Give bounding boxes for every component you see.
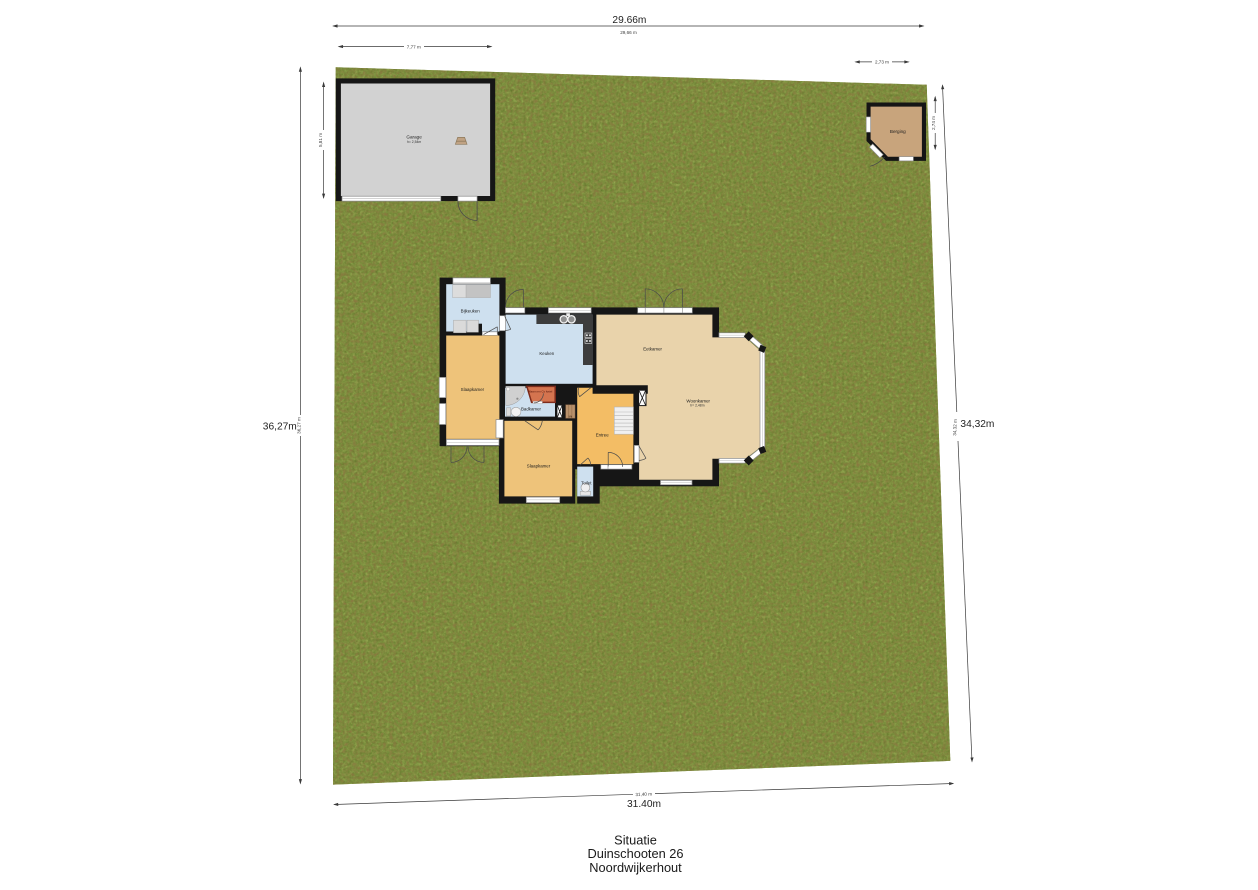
svg-text:Toilet: Toilet bbox=[581, 481, 592, 486]
svg-text:Bijkeuken: Bijkeuken bbox=[461, 309, 481, 314]
svg-text:31,40 m: 31,40 m bbox=[635, 792, 652, 798]
svg-text:Slaapkamer: Slaapkamer bbox=[527, 463, 551, 468]
svg-text:Keuken: Keuken bbox=[539, 351, 554, 356]
svg-text:Badkamer: Badkamer bbox=[521, 406, 542, 411]
svg-text:34,32m: 34,32m bbox=[960, 419, 994, 430]
svg-text:34,32 m: 34,32 m bbox=[952, 419, 958, 436]
svg-text:Berging: Berging bbox=[890, 129, 906, 134]
svg-text:7,77 m: 7,77 m bbox=[407, 44, 421, 49]
svg-text:Eetkamer: Eetkamer bbox=[643, 346, 662, 351]
svg-text:Slaapkamer: Slaapkamer bbox=[461, 387, 485, 392]
svg-text:29.66m: 29.66m bbox=[612, 15, 646, 26]
svg-text:2,73 m: 2,73 m bbox=[875, 60, 889, 65]
svg-text:36,27 m: 36,27 m bbox=[297, 417, 302, 434]
svg-text:Wasm en Cv ketel: Wasm en Cv ketel bbox=[528, 390, 553, 394]
svg-text:31.40m: 31.40m bbox=[627, 799, 661, 810]
svg-text:29,66 m: 29,66 m bbox=[620, 30, 637, 35]
svg-text:2,74 m: 2,74 m bbox=[931, 116, 936, 130]
svg-text:Noordwijkerhout: Noordwijkerhout bbox=[589, 860, 682, 875]
svg-text:Entree: Entree bbox=[596, 432, 609, 437]
svg-text:h= 2,48m: h= 2,48m bbox=[690, 404, 704, 408]
svg-text:36,27m: 36,27m bbox=[263, 421, 297, 432]
svg-text:Garage: Garage bbox=[406, 134, 422, 139]
svg-text:5,81 m: 5,81 m bbox=[318, 133, 323, 147]
svg-text:h= 2,54m: h= 2,54m bbox=[407, 140, 421, 144]
